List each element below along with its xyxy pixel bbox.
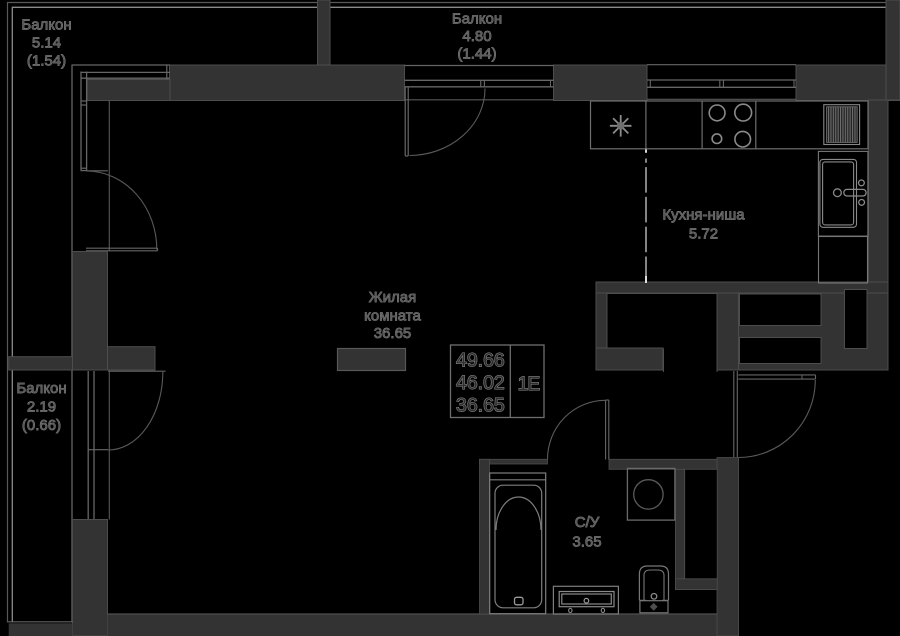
svg-text:Кухня-ниша: Кухня-ниша [662, 207, 745, 224]
svg-text:Жилая: Жилая [369, 289, 416, 306]
svg-text:36.65: 36.65 [374, 325, 412, 342]
svg-text:С/У: С/У [575, 514, 600, 531]
svg-text:комната: комната [364, 307, 421, 324]
svg-text:Балкон: Балкон [21, 17, 71, 34]
svg-text:3.65: 3.65 [572, 534, 601, 551]
svg-text:1Е: 1Е [518, 374, 540, 395]
svg-text:49.66: 49.66 [456, 350, 505, 372]
svg-text:(1.54): (1.54) [27, 53, 66, 70]
svg-text:(1.44): (1.44) [457, 46, 496, 63]
svg-text:2.19: 2.19 [27, 399, 56, 416]
svg-text:5.14: 5.14 [32, 35, 61, 52]
svg-text:4.80: 4.80 [462, 28, 491, 45]
svg-text:(0.66): (0.66) [22, 417, 61, 434]
svg-text:Балкон: Балкон [16, 380, 66, 397]
svg-text:Балкон: Балкон [452, 11, 502, 28]
svg-text:36.65: 36.65 [456, 394, 505, 416]
svg-text:5.72: 5.72 [689, 226, 718, 243]
svg-text:46.02: 46.02 [456, 372, 505, 394]
